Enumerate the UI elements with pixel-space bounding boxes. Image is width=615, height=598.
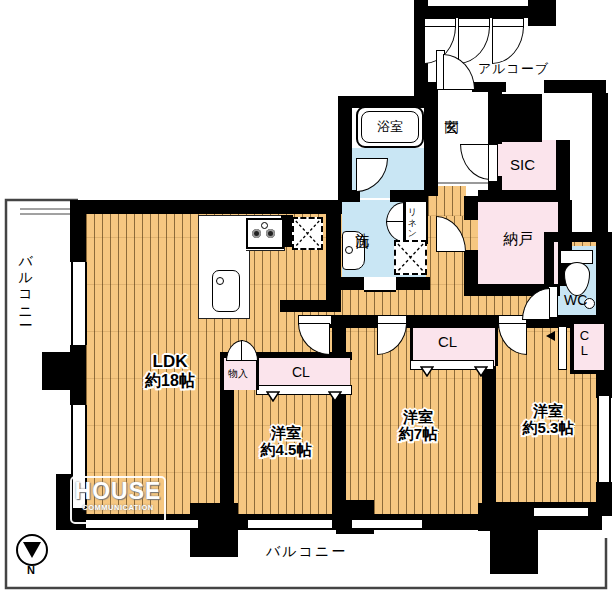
bath-label: 浴室 bbox=[377, 119, 403, 134]
entrance-label: 玄関 bbox=[444, 108, 460, 112]
burner-icon bbox=[252, 229, 261, 238]
wall bbox=[478, 190, 558, 202]
balcony-left-label: バルコニー bbox=[18, 245, 34, 319]
house-communication-watermark: HOUSE COMMUNICATION bbox=[70, 476, 166, 524]
folding-door-triangle bbox=[474, 366, 488, 377]
ldk-label: LDK 約18帖 bbox=[108, 352, 232, 390]
folding-door-triangle bbox=[328, 391, 342, 402]
window bbox=[248, 518, 332, 530]
east-service-slot bbox=[572, 142, 592, 234]
faucet-icon bbox=[345, 246, 353, 254]
sliding-door-leaf bbox=[558, 326, 567, 370]
north-arrow-triangle-icon bbox=[23, 542, 41, 558]
wall bbox=[340, 277, 364, 290]
linen-label: リネン bbox=[407, 202, 417, 233]
pillar bbox=[490, 528, 538, 574]
storage-room-label: 納戸 bbox=[503, 230, 533, 247]
wall bbox=[414, 6, 544, 18]
ldk-size: 約18帖 bbox=[108, 372, 232, 390]
wall bbox=[70, 200, 86, 262]
closet-53-label: CL bbox=[576, 328, 591, 358]
bedroom-53-size: 約5.3帖 bbox=[492, 419, 604, 436]
burner-icon bbox=[261, 222, 268, 229]
bedroom-7-label: 洋室 約7帖 bbox=[362, 408, 474, 443]
alcove-label: アルコーブ bbox=[478, 62, 549, 77]
wall bbox=[528, 0, 556, 26]
floor-plan: 浴室 バルコニー バルコニー アルコーブ 玄関 SIC 納戸 洗面 リネン WC… bbox=[0, 0, 615, 598]
wall bbox=[556, 140, 570, 202]
bedroom-7-size: 約7帖 bbox=[362, 425, 474, 442]
closet-45-label: CL bbox=[292, 364, 310, 380]
burner-icon bbox=[266, 229, 275, 238]
bedroom-45-label: 洋室 約4.5帖 bbox=[230, 424, 342, 459]
wall bbox=[338, 100, 352, 202]
hall-closet-label: CL bbox=[438, 333, 457, 350]
north-arrow: N bbox=[16, 534, 50, 580]
bedroom-53-name: 洋室 bbox=[492, 402, 604, 419]
wall bbox=[70, 200, 342, 214]
bedroom-45-name: 洋室 bbox=[230, 424, 342, 441]
bathtub: 浴室 bbox=[356, 106, 424, 148]
folding-door-triangle bbox=[420, 366, 434, 377]
north-arrow-circle-icon bbox=[16, 534, 48, 566]
wall bbox=[490, 94, 542, 142]
balcony-bottom-label: バルコニー bbox=[266, 543, 347, 559]
watermark-line1: HOUSE bbox=[72, 478, 164, 504]
sliding-door-marker-icon bbox=[546, 331, 555, 341]
wall bbox=[280, 300, 341, 312]
wall bbox=[326, 200, 341, 304]
washbasin bbox=[342, 231, 365, 270]
bedroom-45-size: 約4.5帖 bbox=[230, 441, 342, 458]
kitchen-sink bbox=[212, 270, 240, 312]
wall bbox=[544, 80, 606, 93]
folding-door-triangle bbox=[266, 391, 280, 402]
pillar bbox=[42, 352, 86, 390]
bedroom-53-label: 洋室 約5.3帖 bbox=[492, 402, 604, 437]
bedroom-7-name: 洋室 bbox=[362, 408, 474, 425]
window bbox=[71, 262, 87, 345]
washroom-door-gap bbox=[364, 277, 396, 292]
faucet-icon bbox=[216, 277, 224, 285]
wall bbox=[396, 277, 430, 290]
wall bbox=[332, 322, 346, 520]
washer-space bbox=[394, 240, 427, 275]
wc-label: WC bbox=[564, 292, 587, 308]
wall bbox=[592, 93, 608, 241]
wall bbox=[464, 196, 478, 220]
wall bbox=[596, 482, 612, 516]
watermark-line2: COMMUNICATION bbox=[72, 504, 164, 512]
wall bbox=[424, 82, 438, 196]
stove bbox=[246, 218, 284, 249]
washroom-label: 洗面 bbox=[355, 222, 371, 226]
north-label: N bbox=[27, 564, 35, 577]
refrigerator-space bbox=[292, 217, 323, 250]
door-leaf bbox=[488, 144, 498, 182]
sic-label: SIC bbox=[510, 156, 535, 173]
window bbox=[534, 506, 588, 518]
ldk-name: LDK bbox=[108, 352, 232, 372]
entrance-step-line bbox=[438, 182, 490, 184]
window bbox=[352, 518, 422, 530]
bathtub-inner: 浴室 bbox=[361, 111, 419, 143]
